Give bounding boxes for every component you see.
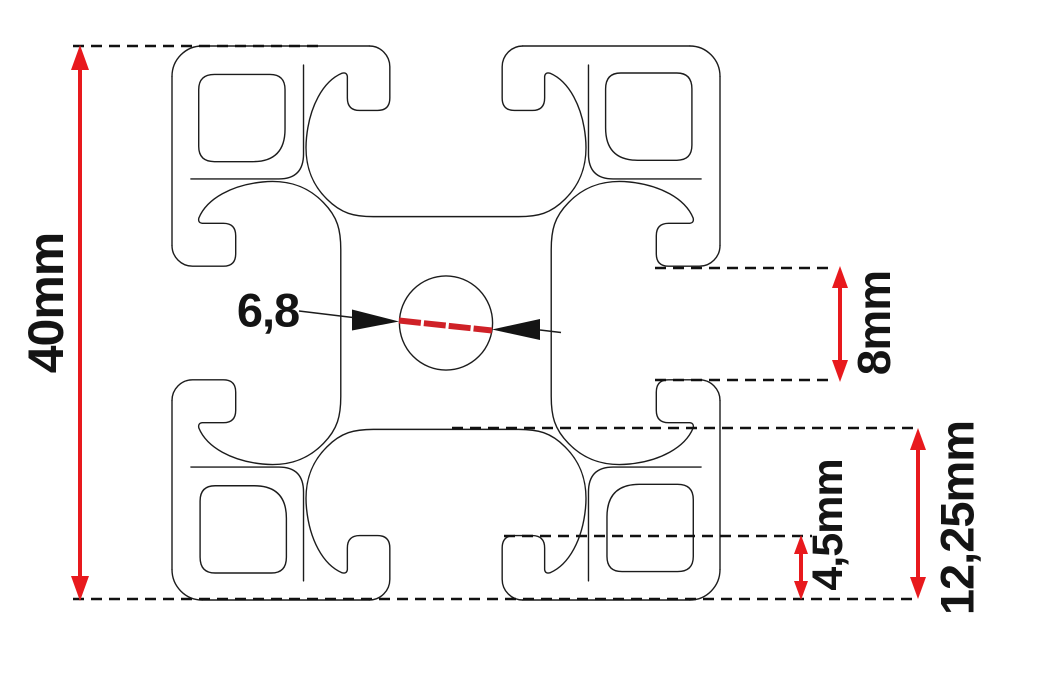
arrow-up-icon	[71, 45, 89, 70]
extrusion-profile-diagram: 40mm 8mm 12,25mm 4,5mm 6,8	[0, 0, 1040, 680]
bore-diameter-line	[399, 321, 492, 331]
arrow-down-icon	[832, 360, 848, 382]
arrow-up-icon	[832, 266, 848, 288]
profile-left-quarter	[172, 76, 341, 600]
dimension-label-4-5mm: 4,5mm	[804, 459, 852, 590]
dimension-label-12-25mm: 12,25mm	[931, 421, 984, 615]
callout-center-bore: 6,8	[237, 284, 561, 341]
arrow-left-icon	[492, 319, 540, 340]
profile-bottom-quarter	[202, 429, 720, 600]
arrow-up-icon	[910, 428, 926, 450]
dimension-label-8mm: 8mm	[848, 271, 900, 375]
callout-leader-line	[299, 311, 357, 318]
arrow-down-icon	[71, 576, 89, 601]
arrow-down-icon	[910, 577, 926, 599]
dimension-cavity-depth: 12,25mm	[910, 421, 984, 615]
dimension-slot-opening: 8mm	[832, 266, 900, 382]
profile-right-quarter	[551, 46, 720, 570]
callout-tail-line	[540, 330, 561, 333]
dimension-label-40mm: 40mm	[18, 233, 74, 374]
dimension-lip-depth: 4,5mm	[794, 459, 852, 600]
dimension-overall-height: 40mm	[18, 45, 89, 601]
profile-top-quarter	[172, 46, 690, 217]
arrow-right-icon	[352, 310, 399, 331]
dimension-label-6-8: 6,8	[237, 284, 299, 337]
